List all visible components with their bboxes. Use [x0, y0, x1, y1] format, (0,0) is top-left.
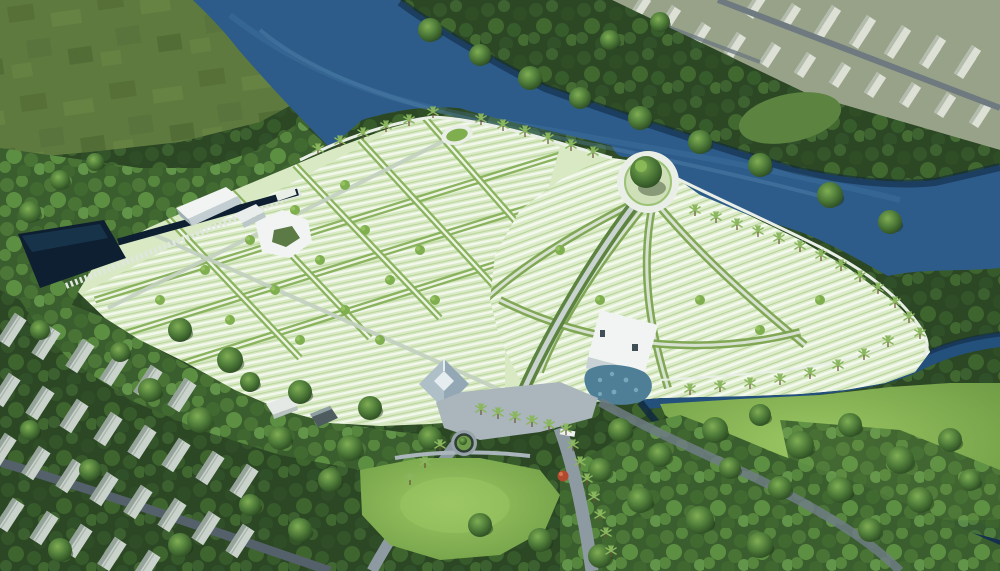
hedge-cluster	[385, 275, 395, 285]
aerial-render	[0, 0, 1000, 571]
hedge-cluster	[200, 265, 210, 275]
hedge-cluster	[360, 225, 370, 235]
hedge-cluster	[555, 245, 565, 255]
hedge-cluster	[155, 295, 165, 305]
roundabout	[451, 430, 477, 456]
circular-tree-plaza	[617, 151, 679, 213]
hedge-cluster	[430, 295, 440, 305]
hedge-cluster	[290, 205, 300, 215]
hedge-cluster	[375, 335, 385, 345]
hedge-cluster	[270, 285, 280, 295]
red-flowering-tree	[558, 471, 569, 482]
hedge-cluster	[695, 295, 705, 305]
hedge-cluster	[295, 335, 305, 345]
hedge-cluster	[755, 325, 765, 335]
hedge-cluster	[595, 295, 605, 305]
hedge-cluster	[415, 245, 425, 255]
hedge-cluster	[340, 305, 350, 315]
hedge-cluster	[340, 180, 350, 190]
plaza-great-tree	[630, 156, 662, 188]
hedge-cluster	[315, 255, 325, 265]
master-plan-svg	[0, 0, 1000, 571]
hedge-cluster	[225, 315, 235, 325]
hedge-cluster	[245, 235, 255, 245]
hedge-cluster	[815, 295, 825, 305]
